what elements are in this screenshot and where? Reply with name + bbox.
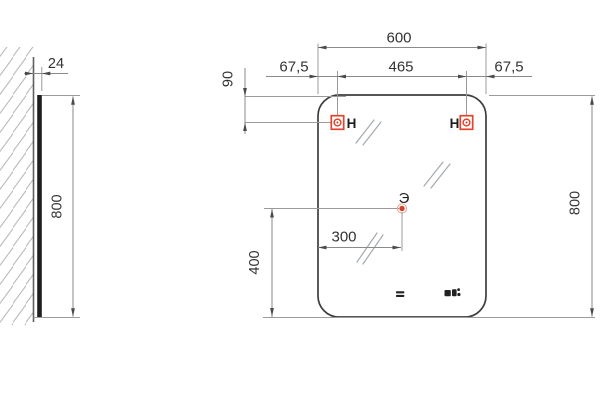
side-depth-label: 24 xyxy=(48,56,64,72)
point-vertical-label: 400 xyxy=(247,250,263,274)
side-view: 24 800 xyxy=(0,47,80,325)
left-hole-label: H xyxy=(347,116,357,131)
right-offset-label: 67,5 xyxy=(494,59,523,76)
wall-hatch-icon xyxy=(0,47,34,325)
point-horizontal-label: 300 xyxy=(331,229,356,246)
front-height-label: 800 xyxy=(568,191,584,215)
side-height-label: 800 xyxy=(50,194,66,218)
front-view: 600 67,5 465 67,5 90 xyxy=(221,30,596,318)
mirror-dimension-diagram: 24 800 6 xyxy=(0,0,600,408)
right-mount-point-icon xyxy=(460,116,472,130)
left-offset-label: 67,5 xyxy=(279,59,308,76)
technical-drawing: 24 800 6 xyxy=(0,0,600,408)
sensor-point-label: Э xyxy=(399,190,410,207)
hole-spacing-label: 465 xyxy=(388,59,413,76)
front-width-label: 600 xyxy=(386,30,411,47)
left-mount-point-icon xyxy=(331,116,343,130)
right-hole-label: H xyxy=(450,116,460,131)
mirror-side-profile xyxy=(37,95,42,317)
dim-point-vertical: 400 xyxy=(247,209,274,318)
hole-top-offset-label: 90 xyxy=(221,71,237,87)
